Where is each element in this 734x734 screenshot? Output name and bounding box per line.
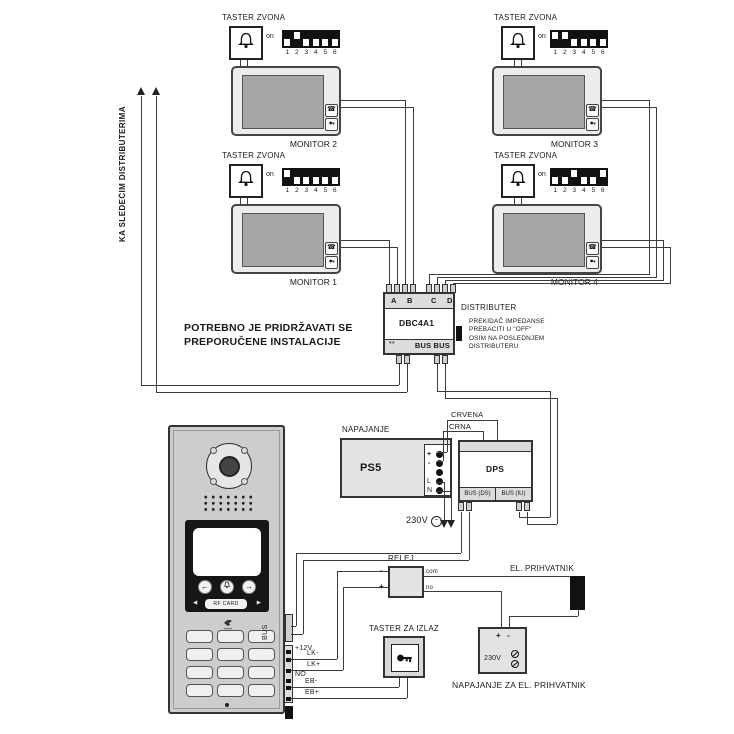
wire-red-label: CRVENA [450,410,484,419]
mains-voltage-label: 230V [406,515,428,525]
wire [501,591,502,627]
warning-line-2: PREPORUČENE INSTALACIJE [184,336,353,350]
monitor-2: ☎ [231,66,341,136]
relay-box [388,566,424,598]
bell-button [501,164,535,198]
sound-mark-icon: ▶ [257,600,261,606]
dip-number: 3 [302,187,311,194]
wire [413,107,414,284]
terminal-strip [284,645,293,703]
dip-number: 4 [580,49,589,56]
terminal-stub [516,502,522,511]
dip-number: 3 [570,49,579,56]
relay-title: RELEJ [388,554,414,563]
dip-on-label: on [538,33,546,40]
wire [557,398,558,524]
wire [240,60,241,66]
dip-cell [589,31,598,47]
phone-icon: ☎ [325,242,338,255]
brand-logo [218,617,238,631]
dps-model: DPS [486,464,504,474]
dip-number: 2 [293,187,302,194]
dip-number: 3 [570,187,579,194]
wire [247,60,248,66]
panel-display [193,528,261,576]
monitor-screen [503,75,585,129]
terminal-stub [434,355,440,364]
warning-line-1: POTREBNO JE PRIDRŽAVATI SE [184,322,353,336]
bell-icon [236,31,256,56]
keypad-button [186,666,213,679]
keypad-button [186,630,213,643]
dip-number: 1 [283,187,292,194]
wire [437,461,443,462]
dip-cell [551,31,560,47]
keypad-button [217,648,244,661]
dps-box: DPS BUS (DS) BUS (IU) [458,440,533,502]
strike-psu-mains: 230V [484,655,501,662]
monitor-screen [503,213,585,267]
dip-cell [580,169,589,185]
exit-key-icon [391,644,419,672]
terminal-a-label: A [391,296,397,305]
screw-icon [210,478,217,485]
dip-number: 2 [561,49,570,56]
phone-icon: ☎ [325,104,338,117]
dip-cell [312,31,321,47]
distributor-box: A B C D DBC4A1 ** BUS BUS [383,292,455,355]
dip-cell [580,31,589,47]
psu-terminal-n: N [427,487,432,494]
terminal-stub [450,284,456,293]
distributor-title: DISTRIBUTER [461,303,517,312]
wire [429,274,430,284]
wire [437,491,451,492]
distributor-model: DBC4A1 [399,318,434,328]
wire [437,452,447,453]
arrow-down-icon [447,520,455,528]
arrow-up-icon [137,87,145,95]
dip-switch: 123456 [282,168,340,195]
dip-cell [312,169,321,185]
wire [337,571,388,572]
installation-warning: POTREBNO JE PRIDRŽAVATI SE PREPORUČENE I… [184,322,353,349]
wire [443,431,444,461]
wire [240,198,241,204]
dip-number: 5 [321,187,330,194]
wire [656,107,657,277]
distributor-bus-label: BUS BUS [415,341,450,350]
lk-minus-label: LK- [306,650,320,657]
terminal-stub [442,355,448,364]
screw-icon [241,447,248,454]
dip-cell [283,169,292,185]
dip-number: 6 [331,49,340,56]
monitor-screen [242,213,324,267]
wire [469,512,470,560]
bell-button-label: TASTER ZVONA [222,151,285,160]
bell-button-label: TASTER ZVONA [494,13,557,22]
wire [291,626,296,627]
distributor-marks: ** [389,341,395,348]
wire [141,385,399,386]
phone-icon: ☎ [586,104,599,117]
keypad-button [186,648,213,661]
wire [445,280,446,284]
wire [443,431,483,432]
wire [303,560,304,634]
camera-lens-icon [219,456,240,477]
monitor-label: MONITOR 4 [492,277,602,287]
wire [663,240,664,281]
wire [389,240,390,284]
psu-terminal-minus: - [428,460,431,467]
dps-bus-ds-label: BUS (DS) [460,487,496,500]
wire [519,512,520,517]
dip-switch: 123456 [282,30,340,57]
wire [461,512,462,553]
wire [527,512,528,524]
eb-plus-label: EB+ [304,689,320,696]
bell-icon [508,31,528,56]
wire [337,571,338,659]
pin [286,679,291,683]
wire [291,670,343,671]
wire [437,277,657,278]
bell-button [229,164,263,198]
terminal-stub [404,355,410,364]
relay-com-label: com [426,569,438,575]
bus-connector [285,614,293,642]
dip-cell [283,31,292,47]
wire [602,100,649,101]
keypad-button [248,666,275,679]
bell-button [229,26,263,60]
terminal-stub [396,355,402,364]
wire [514,60,515,66]
wire [343,587,388,588]
pin [286,650,291,654]
monitor-label: MONITOR 1 [231,277,341,287]
strike-psu-plus: + [496,631,501,640]
dip-number: 4 [312,187,321,194]
keypad-button [186,684,213,697]
wire [509,616,578,617]
dip-cell [589,169,598,185]
wire [291,659,337,660]
dip-number: 5 [589,49,598,56]
key-icon [325,118,338,131]
psu-model: PS5 [360,462,381,474]
dip-number: 4 [580,187,589,194]
wire [424,591,501,592]
terminal-stub [410,284,416,293]
wire [341,100,405,101]
screw-terminal-icon [511,650,519,658]
dip-cell [331,31,340,47]
wire [447,420,497,421]
terminal-stub [442,284,448,293]
screw-terminal-icon [511,660,519,668]
wire [291,687,399,688]
distributor-note-line: PREBACITI U "OFF" [469,326,545,334]
wire [437,482,444,483]
dip-cell [331,169,340,185]
key-icon [325,256,338,269]
dip-switch: 123456 [550,30,608,57]
micro-connector [285,706,293,719]
keypad-button [217,630,244,643]
exit-button-title: TASTER ZA IZLAZ [369,624,439,633]
dip-on-label: on [266,171,274,178]
wire [519,517,550,518]
dip-number: 2 [561,187,570,194]
monitor-4: ☎ [492,204,602,274]
dip-on-label: on [538,171,546,178]
left-arrow-button: ← [198,580,212,594]
terminal-stub [524,502,530,511]
key-icon [586,118,599,131]
monitor-1: ☎ [231,204,341,274]
strike-title: EL. PRIHVATNIK [510,564,574,573]
wire [451,491,452,520]
camera [206,443,252,489]
next-distributors-note: KA SLEDEĆIM DISTRIBUTERIMA [118,92,127,242]
bell-icon [508,169,528,194]
dip-cell [302,31,311,47]
dip-number: 4 [312,49,321,56]
terminal-c-label: C [431,296,437,305]
wire [291,634,303,635]
terminal-stub [466,502,472,511]
distributor-note-line: PREKIDAČ IMPEDANSE [469,318,545,326]
wire [405,100,406,284]
wire [141,96,142,385]
wire [437,277,438,284]
psu-label: NAPAJANJE [342,425,389,434]
dip-number: 1 [551,187,560,194]
wire [602,107,656,108]
wire [550,391,551,517]
no-label: NO [294,671,307,678]
dip-cell [293,31,302,47]
wire [602,247,670,248]
terminal-stub [426,284,432,293]
wire [407,678,408,698]
right-arrow-button: → [242,580,256,594]
bell-button-label: TASTER ZVONA [222,13,285,22]
dip-number: 5 [589,187,598,194]
wire [578,610,579,616]
dip-number: 6 [331,187,340,194]
wire [521,198,522,204]
dps-bus-iu-label: BUS (IU) [495,487,531,500]
keypad-button [248,648,275,661]
wire [296,553,297,626]
screw-icon [241,478,248,485]
arrow-up-icon [152,87,160,95]
wire [156,392,407,393]
bell-button-label: TASTER ZVONA [494,151,557,160]
electric-strike [570,576,585,610]
terminal-dot [436,469,443,476]
impedance-switch [456,326,462,341]
psu-box: PS5 + - L N [340,438,452,498]
wire [437,391,550,392]
strike-psu-box: + - 230V [478,627,527,674]
dip-cell [599,31,608,47]
terminal-stub [434,284,440,293]
wire [156,96,157,392]
dip-switch: 123456 [550,168,608,195]
dip-number: 1 [283,49,292,56]
wiring-diagram-page: { "diagram": { "side_note": "KA SLEDEĆIM… [0,0,734,734]
bell-button [501,26,535,60]
wire [497,420,498,440]
dip-cell [561,31,570,47]
terminal-b-label: B [407,296,413,305]
wire [521,60,522,66]
wire [602,240,663,241]
wire [670,247,671,284]
wire [424,576,570,577]
dip-cell [302,169,311,185]
sound-mark-icon: ◀ [193,600,197,606]
speaker-grille [202,494,254,512]
wire [303,560,469,561]
panel-bus-label: BUS [262,612,269,640]
dip-cell [293,169,302,185]
rf-card-label: RF CARD [205,599,247,609]
distributor-note-line: OSIM NA POSLEDNJEM [469,335,545,343]
distributor-note-line: DISTRIBUTERU [469,343,545,351]
wire [437,364,438,391]
wire [445,364,446,398]
key-icon [586,256,599,269]
strike-psu-minus: - [507,631,510,640]
wire [341,107,413,108]
dip-number: 6 [599,49,608,56]
psu-terminal-plus: + [427,451,431,458]
wire [397,247,398,284]
wire [447,420,448,452]
wire [527,524,557,525]
wire-black-label: CRNA [448,422,472,431]
dip-cell [551,169,560,185]
wire [343,587,344,670]
wire [445,398,557,399]
monitor-label: MONITOR 2 [231,139,341,149]
wire [514,198,515,204]
wire [453,283,671,284]
call-bell-button [220,580,234,594]
dip-number: 6 [599,187,608,194]
wire [341,240,389,241]
keypad-button [217,684,244,697]
dip-number: 1 [551,49,560,56]
wire [291,698,407,699]
wire [444,482,445,520]
terminal-stub [386,284,392,293]
lk-plus-label: LK+ [306,661,321,668]
terminal-stub [458,502,464,511]
terminal-stub [394,284,400,293]
dip-number: 2 [293,49,302,56]
dip-cell [321,169,330,185]
door-entry-panel: ← → ◀ RF CARD ▶ [168,425,285,714]
dip-number: 3 [302,49,311,56]
dip-cell [561,169,570,185]
screw-icon [210,447,217,454]
dip-cell [570,169,579,185]
phone-icon: ☎ [586,242,599,255]
microphone-hole [225,703,229,707]
bell-icon [236,169,256,194]
dip-cell [570,31,579,47]
exit-button [383,636,425,678]
dip-cell [321,31,330,47]
dip-number: 5 [321,49,330,56]
wire [399,364,400,385]
wire [483,431,484,440]
strike-psu-title: NAPAJANJE ZA EL. PRIHVATNIK [452,680,586,690]
keypad-button [248,684,275,697]
keypad-button [217,666,244,679]
monitor-screen [242,75,324,129]
dip-on-label: on [266,33,274,40]
psu-terminal-l: L [427,478,431,485]
monitor-3: ☎ [492,66,602,136]
wire [399,678,400,687]
display-module: ← → ◀ RF CARD ▶ [185,520,269,612]
wire [445,280,664,281]
wire [509,616,510,627]
wire [407,364,408,392]
terminal-stub [402,284,408,293]
dip-cell [599,169,608,185]
eb-minus-label: EB- [304,678,318,685]
wire [296,553,461,554]
monitor-label: MONITOR 3 [492,139,602,149]
terminal-d-label: D [447,296,453,305]
wire [429,274,650,275]
wire [247,198,248,204]
